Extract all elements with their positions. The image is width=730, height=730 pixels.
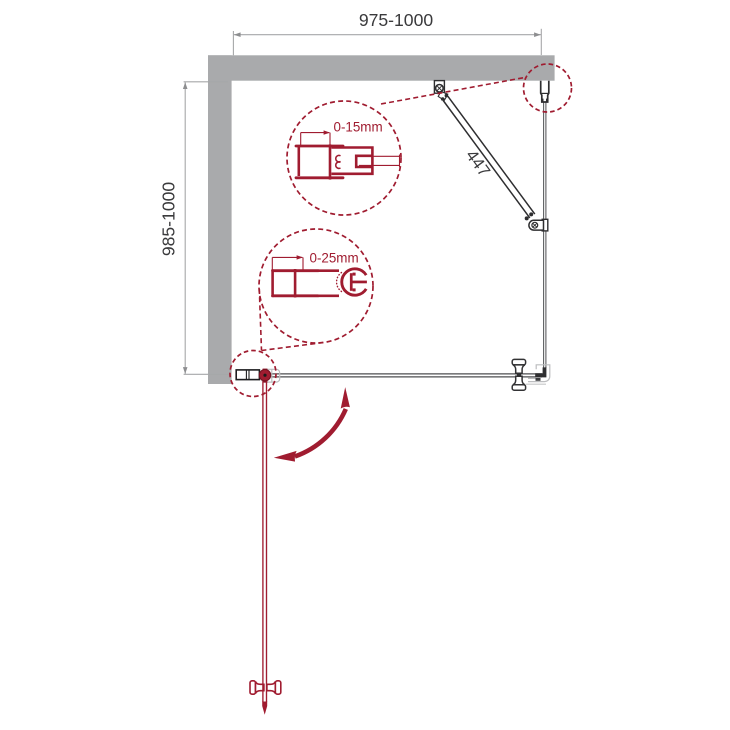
svg-text:985-1000: 985-1000 [159,182,179,257]
svg-text:0-25mm: 0-25mm [310,251,359,266]
svg-text:975-1000: 975-1000 [359,10,434,30]
svg-text:0-15mm: 0-15mm [334,120,383,135]
